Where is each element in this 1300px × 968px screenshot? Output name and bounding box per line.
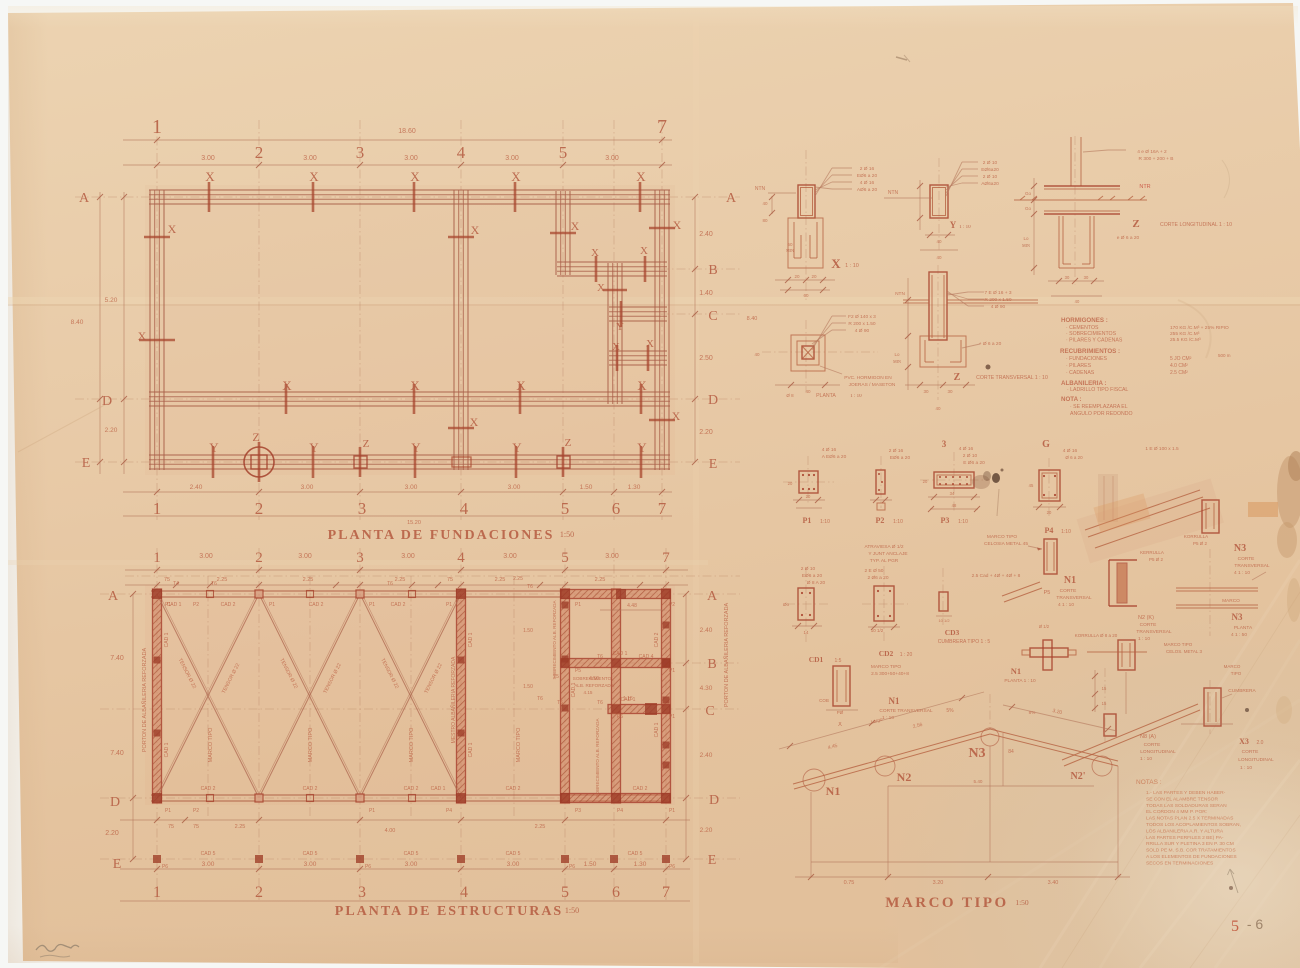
svg-text:X: X xyxy=(470,415,479,429)
svg-text:CORTE: CORTE xyxy=(1060,588,1077,594)
svg-text:X: X xyxy=(168,222,177,236)
svg-text:2 Ø 10: 2 Ø 10 xyxy=(963,453,978,459)
svg-text:MARCO TIPO: MARCO TIPO xyxy=(208,727,214,762)
svg-text:R 200 x 1.50: R 200 x 1.50 xyxy=(984,297,1012,303)
svg-text:X: X xyxy=(637,378,647,393)
svg-text:3.00: 3.00 xyxy=(401,553,415,560)
svg-text:3: 3 xyxy=(356,550,364,566)
svg-text:P1: P1 xyxy=(669,714,675,720)
svg-text:4 1 : 10: 4 1 : 10 xyxy=(1058,602,1074,608)
svg-text:CAD 1: CAD 1 xyxy=(468,742,474,757)
svg-text:· SOBRECIMIENTOS: · SOBRECIMIENTOS xyxy=(1066,331,1117,337)
svg-text:CUMBRERA: CUMBRERA xyxy=(1228,688,1256,694)
svg-text:NTR: NTR xyxy=(1139,184,1150,190)
svg-text:MARCO TIPO: MARCO TIPO xyxy=(1164,642,1193,647)
svg-text:Go: Go xyxy=(1025,206,1032,211)
svg-text:A LOS ELEMENTOS DE FUNDACIONES: A LOS ELEMENTOS DE FUNDACIONES xyxy=(1146,854,1237,860)
svg-text:ATRAVIESA Ø 1/2: ATRAVIESA Ø 1/2 xyxy=(864,544,903,550)
svg-text:P1: P1 xyxy=(369,808,375,814)
svg-text:RECUBRIMIENTOS :: RECUBRIMIENTOS : xyxy=(1060,348,1120,355)
svg-text:NOTAS :: NOTAS : xyxy=(1136,779,1162,786)
svg-text:30: 30 xyxy=(923,389,929,394)
svg-text:CAD 1: CAD 1 xyxy=(164,632,170,647)
svg-text:N3: N3 xyxy=(1234,543,1246,554)
svg-text:3: 3 xyxy=(356,143,365,162)
svg-text:20: 20 xyxy=(788,481,793,486)
svg-text:30: 30 xyxy=(947,389,953,394)
svg-text:N1: N1 xyxy=(1064,575,1076,586)
svg-text:HORMIGONES :: HORMIGONES : xyxy=(1061,317,1108,324)
svg-text:N1: N1 xyxy=(1011,666,1021,676)
svg-text:Øo: Øo xyxy=(783,602,790,607)
svg-text:P5 Ø 2: P5 Ø 2 xyxy=(1193,541,1208,546)
svg-text:Z: Z xyxy=(363,438,370,450)
svg-text:PØ: PØ xyxy=(837,710,844,715)
svg-text:X: X xyxy=(831,256,841,271)
svg-text:MESTRO ALBAÑILERIA REFORZADA: MESTRO ALBAÑILERIA REFORZADA xyxy=(450,656,457,743)
svg-text:6: 6 xyxy=(612,499,621,518)
svg-text:P1: P1 xyxy=(575,602,581,608)
svg-text:CAD 1: CAD 1 xyxy=(468,632,474,647)
svg-text:Ø 8 A 20: Ø 8 A 20 xyxy=(807,580,826,586)
svg-text:ANGULO POR REDONDO: ANGULO POR REDONDO xyxy=(1070,411,1133,417)
svg-text:1:50: 1:50 xyxy=(565,906,579,915)
svg-text:CORTE: CORTE xyxy=(1144,742,1161,748)
svg-text:P5 Ø 2: P5 Ø 2 xyxy=(1149,557,1164,562)
svg-text:E Ø6 a 20: E Ø6 a 20 xyxy=(963,460,985,466)
svg-text:2.5 CM²: 2.5 CM² xyxy=(1170,370,1188,376)
svg-text:LOS ALBANILERIA A.R. Y ALTURA: LOS ALBANILERIA A.R. Y ALTURA xyxy=(1146,828,1224,834)
svg-text:15.20: 15.20 xyxy=(407,520,421,526)
svg-text:AØ6 a 20: AØ6 a 20 xyxy=(857,187,878,193)
svg-text:3.00: 3.00 xyxy=(508,484,521,491)
svg-text:3.00: 3.00 xyxy=(202,861,215,868)
svg-text:F2 Ø 140 x 3: F2 Ø 140 x 3 xyxy=(848,314,876,320)
svg-text:40: 40 xyxy=(754,352,760,357)
svg-text:4.30: 4.30 xyxy=(700,685,713,692)
svg-text:- 6: - 6 xyxy=(1247,916,1264,932)
svg-text:60: 60 xyxy=(803,293,809,298)
svg-text:MIN: MIN xyxy=(893,359,901,364)
svg-text:3.00: 3.00 xyxy=(503,553,517,560)
svg-text:84: 84 xyxy=(1008,749,1014,755)
svg-text:Y: Y xyxy=(411,440,421,455)
svg-text:P4: P4 xyxy=(1045,526,1054,535)
svg-text:CAD 1: CAD 1 xyxy=(164,742,170,757)
svg-text:D: D xyxy=(110,795,120,810)
svg-text:3.00: 3.00 xyxy=(507,861,520,868)
svg-text:P5: P5 xyxy=(1044,590,1051,596)
svg-text:1.30: 1.30 xyxy=(628,484,641,491)
svg-text:14: 14 xyxy=(803,630,809,635)
svg-text:X: X xyxy=(673,218,682,232)
svg-text:X: X xyxy=(591,247,599,259)
svg-text:P1: P1 xyxy=(803,516,812,525)
svg-text:B: B xyxy=(708,263,717,278)
svg-text:3.00: 3.00 xyxy=(304,861,317,868)
svg-text:MARCO TIPO: MARCO TIPO xyxy=(516,727,522,762)
svg-text:2 E Ø 50: 2 E Ø 50 xyxy=(865,568,884,574)
svg-text:2.25: 2.25 xyxy=(535,824,546,830)
svg-text:A EØ6 a 20: A EØ6 a 20 xyxy=(822,454,847,460)
svg-text:5%: 5% xyxy=(946,708,954,714)
svg-text:CAD 5: CAD 5 xyxy=(303,851,318,857)
svg-text:20: 20 xyxy=(1047,510,1052,515)
svg-text:P2: P2 xyxy=(193,602,199,608)
svg-text:SOBRECIMIENTO ALB. REFORZADA: SOBRECIMIENTO ALB. REFORZADA xyxy=(552,600,557,680)
svg-text:1:10: 1:10 xyxy=(820,519,830,525)
svg-text:75: 75 xyxy=(447,577,453,583)
svg-text:T5: T5 xyxy=(553,674,559,680)
svg-text:AØ6a20: AØ6a20 xyxy=(981,181,999,187)
svg-text:1 : 10: 1 : 10 xyxy=(1138,636,1150,642)
svg-text:X: X xyxy=(410,378,420,393)
svg-text:NTN: NTN xyxy=(888,190,899,196)
svg-text:N2 (K): N2 (K) xyxy=(1138,615,1154,621)
svg-text:4.00: 4.00 xyxy=(385,828,396,834)
svg-text:E: E xyxy=(82,456,91,471)
svg-text:· SE REEMPLAZARA EL: · SE REEMPLAZARA EL xyxy=(1070,404,1128,410)
svg-text:N2': N2' xyxy=(1071,771,1086,782)
svg-text:PLANTA DE ESTRUCTURAS: PLANTA DE ESTRUCTURAS xyxy=(335,904,563,919)
svg-text:CAD 1: CAD 1 xyxy=(571,682,577,697)
svg-text:3.00: 3.00 xyxy=(201,155,215,162)
svg-text:1:50: 1:50 xyxy=(1015,898,1029,907)
svg-text:D: D xyxy=(709,793,719,808)
svg-text:X: X xyxy=(309,169,319,184)
svg-text:NTN: NTN xyxy=(755,186,766,192)
svg-text:C: C xyxy=(705,704,714,719)
svg-text:X: X xyxy=(636,169,646,184)
svg-text:4 Ø 90: 4 Ø 90 xyxy=(991,304,1006,310)
svg-text:A: A xyxy=(79,191,90,206)
svg-text:X: X xyxy=(646,338,654,350)
svg-text:1.50: 1.50 xyxy=(523,684,533,690)
svg-text:KORRULLA Ø 8 a 20: KORRULLA Ø 8 a 20 xyxy=(1075,633,1118,638)
svg-text:4.0 CM²: 4.0 CM² xyxy=(1170,363,1188,369)
svg-text:4 1 : 10: 4 1 : 10 xyxy=(1234,570,1250,576)
svg-text:4 Ø 16: 4 Ø 16 xyxy=(860,180,875,186)
svg-text:PLANTA: PLANTA xyxy=(816,393,836,399)
svg-text:3: 3 xyxy=(942,439,947,449)
svg-text:CAD 2: CAD 2 xyxy=(201,786,216,792)
svg-text:1.40: 1.40 xyxy=(699,290,713,297)
svg-text:CAD 2: CAD 2 xyxy=(391,602,406,608)
svg-text:3.00: 3.00 xyxy=(298,553,312,560)
svg-text:2.25: 2.25 xyxy=(235,824,246,830)
svg-text:2 Ø 16: 2 Ø 16 xyxy=(860,166,875,172)
svg-text:LONGITUDINAL: LONGITUDINAL xyxy=(1140,749,1176,755)
svg-text:P2: P2 xyxy=(876,516,885,525)
svg-text:TRANSVERSAL: TRANSVERSAL xyxy=(1056,595,1092,601)
svg-text:Z: Z xyxy=(252,430,259,444)
svg-text:7 E Ø 16 + 3: 7 E Ø 16 + 3 xyxy=(984,290,1011,296)
svg-text:1.15: 1.15 xyxy=(623,696,633,702)
svg-text:MARCO TIPO: MARCO TIPO xyxy=(409,727,415,762)
svg-text:1: 1 xyxy=(153,550,161,566)
svg-text:SOBRECIMIENTO ALB. REFORZADA: SOBRECIMIENTO ALB. REFORZADA xyxy=(595,718,600,798)
svg-text:2 Ø6 a 20: 2 Ø6 a 20 xyxy=(867,575,888,581)
svg-text:1: 1 xyxy=(152,116,162,138)
svg-text:SECOS EN TERMINACIONES: SECOS EN TERMINACIONES xyxy=(1146,860,1214,866)
svg-text:ALB. REFORZADA: ALB. REFORZADA xyxy=(574,683,615,688)
svg-text:X: X xyxy=(516,378,526,393)
svg-text:X: X xyxy=(138,329,147,343)
svg-text:3: 3 xyxy=(358,884,366,901)
svg-text:P1: P1 xyxy=(446,602,452,608)
svg-text:LONGITUDINAL: LONGITUDINAL xyxy=(1238,757,1274,763)
svg-text:CD3: CD3 xyxy=(945,628,960,637)
svg-text:MARCO TIPO: MARCO TIPO xyxy=(885,895,1008,911)
svg-text:X: X xyxy=(672,409,681,423)
svg-text:5: 5 xyxy=(559,143,568,162)
svg-text:CELOS. METAL 3: CELOS. METAL 3 xyxy=(1166,649,1203,654)
svg-text:4.50: 4.50 xyxy=(589,676,599,682)
svg-text:3.00: 3.00 xyxy=(405,484,418,491)
svg-text:Z: Z xyxy=(1132,218,1139,230)
svg-text:3: 3 xyxy=(358,499,367,518)
svg-text:1:10: 1:10 xyxy=(958,519,968,525)
svg-text:E: E xyxy=(708,853,717,868)
svg-text:4 e Ø 16A + 2: 4 e Ø 16A + 2 xyxy=(1137,149,1167,155)
svg-text:3.00: 3.00 xyxy=(405,861,418,868)
svg-text:2.40: 2.40 xyxy=(700,752,713,759)
svg-text:CORTE: CORTE xyxy=(1242,749,1259,755)
svg-text:P4: P4 xyxy=(446,808,452,814)
svg-text:X: X xyxy=(571,219,580,233)
svg-text:CELOSIA METAL 45: CELOSIA METAL 45 xyxy=(984,541,1028,547)
svg-text:e Ø 6 a 20: e Ø 6 a 20 xyxy=(1117,235,1140,241)
svg-text:CAD 2: CAD 2 xyxy=(309,602,324,608)
svg-text:P4: P4 xyxy=(617,808,623,814)
svg-text:A: A xyxy=(108,589,119,604)
svg-text:MARCO TIPO: MARCO TIPO xyxy=(987,534,1018,540)
svg-text:MARCO: MARCO xyxy=(1222,598,1240,604)
svg-text:CAD 1: CAD 1 xyxy=(654,722,660,737)
svg-text:4 Ø 16: 4 Ø 16 xyxy=(822,447,837,453)
svg-text:T6: T6 xyxy=(557,700,563,706)
svg-text:N2: N2 xyxy=(897,770,912,784)
svg-text:JOERAS / MASETON: JOERAS / MASETON xyxy=(849,382,896,388)
svg-text:EL CORDON 4 MM P. POR:: EL CORDON 4 MM P. POR: xyxy=(1146,809,1207,815)
svg-text:40: 40 xyxy=(936,239,942,244)
svg-text:MARCO: MARCO xyxy=(1224,664,1241,669)
svg-text:7.40: 7.40 xyxy=(110,655,124,662)
svg-text:T6: T6 xyxy=(597,654,603,660)
svg-text:2 Ø 10: 2 Ø 10 xyxy=(983,160,998,166)
svg-text:3.00: 3.00 xyxy=(404,155,418,162)
svg-text:3.00: 3.00 xyxy=(301,484,314,491)
svg-text:T6: T6 xyxy=(527,584,533,590)
svg-text:CAD 5: CAD 5 xyxy=(628,851,643,857)
svg-text:3.00: 3.00 xyxy=(605,553,619,560)
svg-text:P3: P3 xyxy=(575,808,581,814)
svg-text:Go: Go xyxy=(1025,191,1032,196)
svg-text:Y: Y xyxy=(309,440,319,455)
svg-text:· PILARES: · PILARES xyxy=(1066,363,1092,369)
svg-text:E: E xyxy=(709,457,718,472)
svg-text:170 KG /C.M³ + 25% RIPIO: 170 KG /C.M³ + 25% RIPIO xyxy=(1170,325,1229,331)
svg-text:30: 30 xyxy=(1065,275,1070,280)
svg-text:3.00: 3.00 xyxy=(303,155,317,162)
svg-text:2.25: 2.25 xyxy=(595,577,606,583)
svg-text:1 : 10: 1 : 10 xyxy=(959,225,971,230)
svg-text:X: X xyxy=(838,722,842,728)
svg-text:0.75: 0.75 xyxy=(844,880,855,886)
svg-text:X: X xyxy=(597,282,605,294)
svg-text:Y: Y xyxy=(616,321,624,333)
svg-text:Ø 8: Ø 8 xyxy=(786,393,794,398)
svg-text:CAD 1: CAD 1 xyxy=(431,786,446,792)
svg-text:5: 5 xyxy=(561,884,569,901)
svg-text:E: E xyxy=(113,857,122,872)
svg-text:X: X xyxy=(205,169,215,184)
svg-text:8.40: 8.40 xyxy=(747,316,758,322)
svg-text:MIN: MIN xyxy=(786,248,794,253)
svg-text:15: 15 xyxy=(1102,686,1107,691)
svg-text:1: 1 xyxy=(153,884,161,901)
svg-text:CORTE LONGITUDINAL 1 : 10: CORTE LONGITUDINAL 1 : 10 xyxy=(1160,222,1232,228)
svg-text:5 JO CM²: 5 JO CM² xyxy=(1170,356,1192,362)
svg-text:P1: P1 xyxy=(269,602,275,608)
svg-text:KORRULLA: KORRULLA xyxy=(1184,534,1208,539)
svg-text:2 Ø 10: 2 Ø 10 xyxy=(801,566,816,572)
svg-text:1 : 10: 1 : 10 xyxy=(845,263,859,269)
svg-text:Lo: Lo xyxy=(1023,236,1029,241)
svg-text:P2: P2 xyxy=(669,602,675,608)
svg-text:PLANTA 1 : 10: PLANTA 1 : 10 xyxy=(1004,678,1036,684)
svg-text:25.5 KG /C.M³: 25.5 KG /C.M³ xyxy=(1170,337,1201,343)
svg-text:3.20: 3.20 xyxy=(933,880,944,886)
svg-text:Y JUNT ANCLAJE: Y JUNT ANCLAJE xyxy=(868,551,907,557)
svg-text:EØ6 a 20: EØ6 a 20 xyxy=(802,573,823,579)
svg-text:NTN: NTN xyxy=(895,291,905,297)
svg-text:75: 75 xyxy=(164,577,170,583)
svg-text:3.00: 3.00 xyxy=(199,553,213,560)
svg-text:2.20: 2.20 xyxy=(699,429,713,436)
svg-text:10 1/2: 10 1/2 xyxy=(938,618,950,623)
svg-text:8.40: 8.40 xyxy=(71,319,84,326)
svg-text:40: 40 xyxy=(805,389,811,394)
svg-text:2.25: 2.25 xyxy=(217,577,228,583)
svg-text:MARCO TIPO: MARCO TIPO xyxy=(871,664,902,670)
svg-text:TRANSVERSAL: TRANSVERSAL xyxy=(1234,563,1270,569)
svg-text:P5: P5 xyxy=(575,668,581,674)
svg-text:LAS NOTAS PLAN 2.5 X TERMINADA: LAS NOTAS PLAN 2.5 X TERMINADAS xyxy=(1146,816,1234,822)
svg-text:4.48: 4.48 xyxy=(627,603,637,609)
svg-text:T6: T6 xyxy=(597,700,603,706)
svg-text:X: X xyxy=(640,245,648,257)
svg-text:N1: N1 xyxy=(826,784,841,798)
svg-text:CAD 5: CAD 5 xyxy=(506,851,521,857)
svg-text:G: G xyxy=(1042,439,1050,450)
svg-text:10 1/2: 10 1/2 xyxy=(871,628,884,633)
svg-text:500 m: 500 m xyxy=(1218,353,1231,358)
svg-text:TODOS LOS ACOPLAMIENTOS SOBRA: TODOS LOS ACOPLAMIENTOS SOBRAN, xyxy=(1146,822,1241,828)
svg-text:LAS PARTES PERFILES 2 BE) PA-: LAS PARTES PERFILES 2 BE) PA- xyxy=(1146,835,1224,841)
svg-text:20: 20 xyxy=(794,274,800,279)
svg-text:1 : 10: 1 : 10 xyxy=(1140,756,1152,762)
svg-text:3.40: 3.40 xyxy=(1048,880,1059,886)
svg-text:4: 4 xyxy=(457,143,466,162)
svg-text:2.40: 2.40 xyxy=(699,231,713,238)
svg-text:75: 75 xyxy=(168,824,174,830)
svg-text:PORTON DE ALBAÑILERIA REFORZAD: PORTON DE ALBAÑILERIA REFORZADA xyxy=(141,648,148,753)
svg-text:2.5 300+50+40+8: 2.5 300+50+40+8 xyxy=(871,671,909,677)
svg-text:A: A xyxy=(726,191,737,206)
svg-text:· CADENAS: · CADENAS xyxy=(1066,370,1095,376)
svg-text:2.25: 2.25 xyxy=(303,577,314,583)
svg-text:1 E Ø 100 x 1.5: 1 E Ø 100 x 1.5 xyxy=(1145,446,1179,452)
svg-text:CAD 2: CAD 2 xyxy=(221,602,236,608)
svg-text:1 : 10: 1 : 10 xyxy=(1240,765,1252,771)
svg-text:CORTE: CORTE xyxy=(1238,556,1255,562)
svg-text:TIPO: TIPO xyxy=(1231,671,1242,676)
svg-text:Y: Y xyxy=(209,440,219,455)
svg-text:5.20: 5.20 xyxy=(105,297,118,304)
svg-text:4 Ø 90: 4 Ø 90 xyxy=(855,328,870,334)
svg-text:2.5 Cad + 4Ø + 4Ø + 8: 2.5 Cad + 4Ø + 4Ø + 8 xyxy=(972,573,1021,579)
svg-text:Z: Z xyxy=(565,437,572,449)
svg-text:T6: T6 xyxy=(211,581,217,587)
svg-text:1.50: 1.50 xyxy=(580,484,593,491)
svg-text:D: D xyxy=(102,394,112,409)
svg-text:40: 40 xyxy=(762,201,768,206)
svg-text:Y: Y xyxy=(950,220,957,230)
svg-text:5.40: 5.40 xyxy=(974,779,983,784)
svg-text:N8 (A): N8 (A) xyxy=(1140,734,1156,740)
svg-text:P6: P6 xyxy=(617,714,623,720)
svg-text:255 KG /C.M³: 255 KG /C.M³ xyxy=(1170,331,1200,337)
svg-text:2: 2 xyxy=(255,884,263,901)
svg-text:1 : 20: 1 : 20 xyxy=(900,652,913,658)
svg-text:CAD 5: CAD 5 xyxy=(404,851,419,857)
svg-text:4 1 : 50: 4 1 : 50 xyxy=(1231,632,1247,638)
svg-text:N1: N1 xyxy=(889,696,900,706)
svg-text:2.25: 2.25 xyxy=(395,577,406,583)
svg-text:CAD 2: CAD 2 xyxy=(404,786,419,792)
svg-text:CAD 5: CAD 5 xyxy=(201,851,216,857)
svg-text:P3: P3 xyxy=(941,516,950,525)
svg-text:CAD 1: CAD 1 xyxy=(613,651,628,657)
svg-text:CORTE TRANSVERSAL 1 : 10: CORTE TRANSVERSAL 1 : 10 xyxy=(976,375,1048,381)
svg-text:1 : 10: 1 : 10 xyxy=(850,394,862,399)
svg-text:EØ6 a 20: EØ6 a 20 xyxy=(857,173,878,179)
svg-text:45: 45 xyxy=(1029,483,1034,488)
svg-text:CUMBRERA TIPO 1 : 5: CUMBRERA TIPO 1 : 5 xyxy=(938,639,991,645)
svg-text:2.20: 2.20 xyxy=(105,830,119,837)
svg-text:1.30: 1.30 xyxy=(634,861,647,868)
svg-text:5: 5 xyxy=(561,499,570,518)
svg-text:15: 15 xyxy=(1102,701,1107,706)
svg-text:R 200 x 1.50: R 200 x 1.50 xyxy=(848,321,876,327)
svg-text:4.15: 4.15 xyxy=(584,690,593,695)
svg-text:2.50: 2.50 xyxy=(699,355,713,362)
svg-text:2.40: 2.40 xyxy=(190,484,203,491)
svg-text:CAD 2: CAD 2 xyxy=(633,786,648,792)
svg-text:2.20: 2.20 xyxy=(700,827,713,834)
svg-text:X3: X3 xyxy=(1239,737,1249,746)
svg-text:40: 40 xyxy=(1075,299,1080,304)
svg-text:2: 2 xyxy=(255,499,264,518)
svg-text:1: 1 xyxy=(153,499,162,518)
svg-text:2 Ø 16: 2 Ø 16 xyxy=(889,448,904,454)
svg-text:P1: P1 xyxy=(165,602,171,608)
svg-text:75: 75 xyxy=(193,824,199,830)
svg-text:· FUNDACIONES: · FUNDACIONES xyxy=(1066,356,1107,362)
svg-text:Ø 1/2: Ø 1/2 xyxy=(1039,624,1050,629)
svg-text:40: 40 xyxy=(935,406,941,411)
